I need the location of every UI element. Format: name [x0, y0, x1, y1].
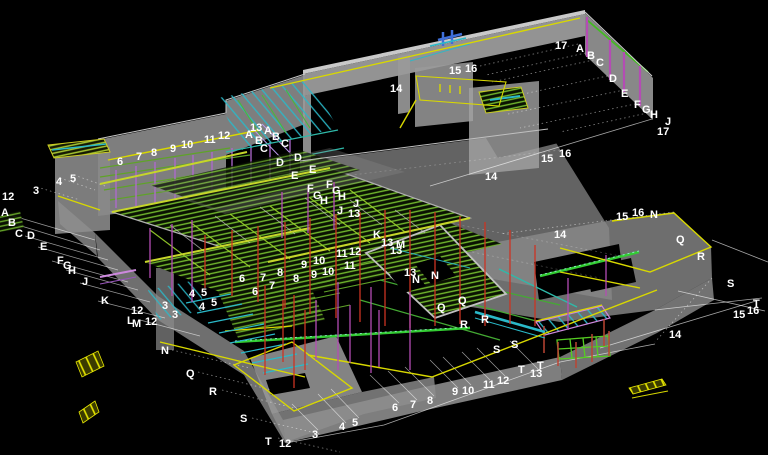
svg-text:C: C: [15, 228, 23, 240]
svg-text:5: 5: [211, 297, 217, 309]
svg-text:3: 3: [172, 309, 178, 321]
svg-text:T: T: [518, 364, 525, 376]
svg-text:9: 9: [452, 386, 458, 398]
svg-text:6: 6: [239, 273, 245, 285]
svg-text:7: 7: [136, 151, 142, 163]
svg-text:D: D: [294, 152, 302, 164]
svg-text:8: 8: [293, 273, 299, 285]
svg-text:T: T: [265, 436, 272, 448]
svg-text:11: 11: [204, 134, 216, 146]
svg-text:F: F: [634, 99, 641, 111]
svg-text:S: S: [493, 344, 500, 356]
svg-text:D: D: [27, 230, 35, 242]
svg-text:15: 15: [616, 211, 628, 223]
svg-text:9: 9: [301, 259, 307, 271]
svg-text:B: B: [272, 131, 280, 143]
svg-text:Q: Q: [458, 295, 467, 307]
svg-text:13: 13: [348, 208, 360, 220]
svg-text:R: R: [697, 251, 705, 263]
svg-text:16: 16: [559, 148, 571, 160]
svg-text:15: 15: [449, 65, 461, 77]
svg-text:N: N: [412, 274, 420, 286]
svg-text:S: S: [727, 278, 734, 290]
svg-text:16: 16: [465, 63, 477, 75]
svg-text:H: H: [650, 109, 658, 121]
svg-text:N: N: [431, 270, 439, 282]
svg-text:8: 8: [277, 267, 283, 279]
svg-text:6: 6: [252, 286, 258, 298]
svg-text:A: A: [264, 125, 272, 137]
svg-text:8: 8: [427, 395, 433, 407]
svg-text:H: H: [68, 265, 76, 277]
svg-text:14: 14: [390, 83, 403, 95]
svg-text:15: 15: [541, 153, 553, 165]
svg-text:7: 7: [269, 280, 275, 292]
svg-text:C: C: [596, 57, 604, 69]
svg-text:B: B: [587, 50, 595, 62]
svg-text:K: K: [373, 229, 381, 241]
svg-text:9: 9: [170, 143, 176, 155]
svg-text:Q: Q: [186, 368, 195, 380]
svg-text:4: 4: [189, 288, 196, 300]
svg-text:11: 11: [344, 260, 356, 272]
svg-text:9: 9: [311, 269, 317, 281]
svg-text:E: E: [621, 88, 628, 100]
svg-text:N: N: [650, 209, 658, 221]
svg-text:10: 10: [322, 266, 334, 278]
svg-text:7: 7: [410, 399, 416, 411]
svg-text:8: 8: [151, 147, 157, 159]
svg-text:6: 6: [392, 402, 398, 414]
svg-text:Q: Q: [437, 302, 446, 314]
svg-text:T: T: [537, 360, 544, 372]
svg-text:J: J: [82, 276, 88, 288]
svg-text:3: 3: [312, 429, 318, 441]
svg-text:5: 5: [70, 173, 76, 185]
svg-text:17: 17: [555, 40, 567, 52]
svg-text:E: E: [40, 241, 47, 253]
svg-text:H: H: [338, 191, 346, 203]
svg-text:3: 3: [33, 185, 39, 197]
svg-text:7: 7: [260, 272, 266, 284]
svg-text:J: J: [337, 205, 343, 217]
svg-text:E: E: [309, 164, 316, 176]
svg-text:R: R: [209, 386, 217, 398]
svg-text:11: 11: [336, 248, 348, 260]
svg-text:H: H: [320, 195, 328, 207]
svg-text:5: 5: [352, 417, 358, 429]
svg-text:12: 12: [279, 438, 291, 450]
svg-text:15: 15: [733, 309, 745, 321]
svg-text:14: 14: [485, 171, 498, 183]
svg-text:6: 6: [117, 156, 123, 168]
svg-text:3: 3: [162, 300, 168, 312]
svg-text:A: A: [576, 43, 584, 55]
svg-text:R: R: [481, 314, 489, 326]
svg-text:13: 13: [390, 245, 402, 257]
svg-text:K: K: [101, 295, 109, 307]
svg-text:16: 16: [632, 207, 644, 219]
svg-text:4: 4: [56, 176, 63, 188]
svg-text:10: 10: [462, 385, 474, 397]
svg-text:A: A: [245, 129, 253, 141]
svg-text:D: D: [276, 157, 284, 169]
svg-text:12: 12: [218, 130, 230, 142]
svg-text:4: 4: [199, 301, 206, 313]
svg-text:C: C: [281, 138, 289, 150]
svg-text:16: 16: [747, 305, 759, 317]
svg-text:10: 10: [181, 139, 193, 151]
svg-text:5: 5: [201, 287, 207, 299]
svg-text:17: 17: [657, 126, 669, 138]
svg-text:12: 12: [145, 316, 157, 328]
svg-text:12: 12: [497, 375, 509, 387]
svg-text:N: N: [161, 345, 169, 357]
svg-text:12: 12: [349, 246, 361, 258]
svg-text:S: S: [240, 413, 247, 425]
svg-text:Q: Q: [676, 234, 685, 246]
svg-text:D: D: [609, 73, 617, 85]
svg-text:4: 4: [339, 421, 346, 433]
svg-text:M: M: [132, 318, 141, 330]
svg-text:R: R: [460, 319, 468, 331]
svg-text:11: 11: [483, 379, 495, 391]
svg-text:14: 14: [554, 229, 567, 241]
svg-text:S: S: [511, 339, 518, 351]
svg-text:C: C: [260, 143, 268, 155]
svg-text:E: E: [291, 170, 298, 182]
svg-text:12: 12: [2, 191, 14, 203]
svg-text:14: 14: [669, 329, 682, 341]
